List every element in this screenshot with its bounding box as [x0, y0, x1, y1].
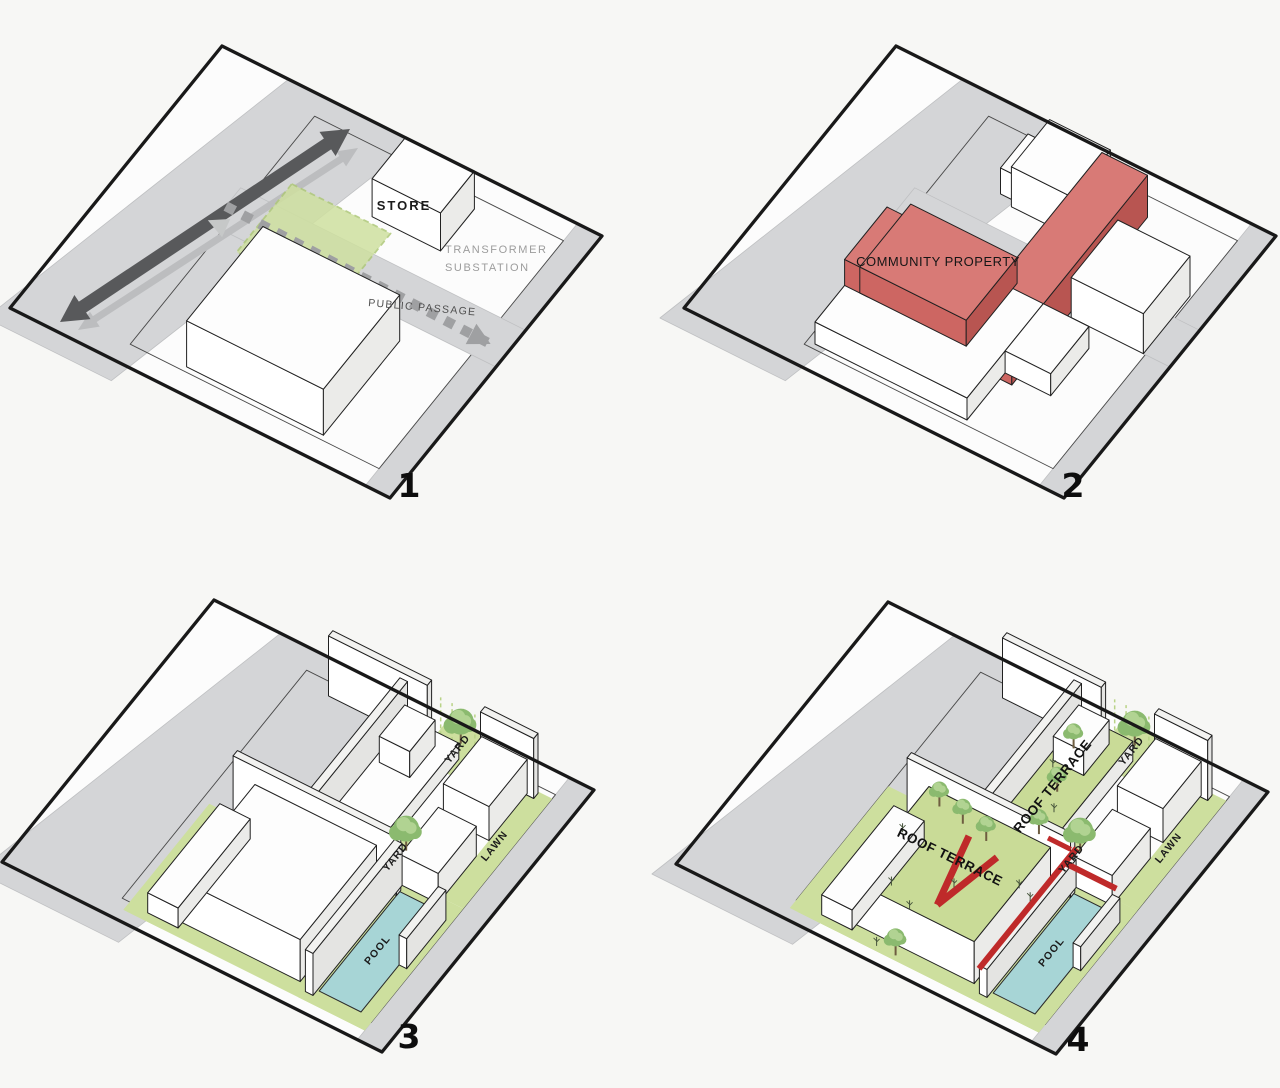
panel-4-number: 4 [1067, 1020, 1090, 1059]
panel-1-number: 1 [398, 466, 421, 505]
tree-canopy [962, 803, 969, 810]
community-property-label: COMMUNITY PROPERTY [856, 254, 1020, 269]
pool-east-wall-left-face [1073, 943, 1081, 971]
north-boundary-wall-east-right-face [534, 733, 538, 798]
panel-2-site-diagram [660, 46, 1276, 498]
transformer-label-line2: SUBSTATION [445, 262, 530, 274]
store-label: STORE [377, 198, 432, 213]
panel-3-number: 3 [398, 1017, 421, 1056]
figure-ground-diagrams: STORE TRANSFORMER SUBSTATION PUBLIC PASS… [0, 0, 1280, 1088]
north-boundary-wall-east-right-face [1208, 735, 1212, 800]
pool-east-wall-left-face [399, 935, 407, 969]
panel-3-site-diagram [0, 600, 594, 1052]
transformer-label-line1: TRANSFORMER [445, 244, 548, 256]
panel-4-site-diagram [652, 602, 1268, 1054]
tree-canopy [405, 822, 417, 834]
tree-canopy [985, 820, 992, 827]
tree-canopy [939, 786, 946, 793]
tree-canopy [1079, 824, 1091, 836]
tree-canopy [1073, 727, 1080, 734]
pool-west-wall-left-face [979, 966, 987, 998]
panel-2-number: 2 [1062, 466, 1085, 505]
diagram-canvas: STORE TRANSFORMER SUBSTATION PUBLIC PASS… [0, 0, 1280, 1088]
tree-canopy [895, 933, 903, 941]
pool-west-wall-left-face [305, 950, 313, 996]
